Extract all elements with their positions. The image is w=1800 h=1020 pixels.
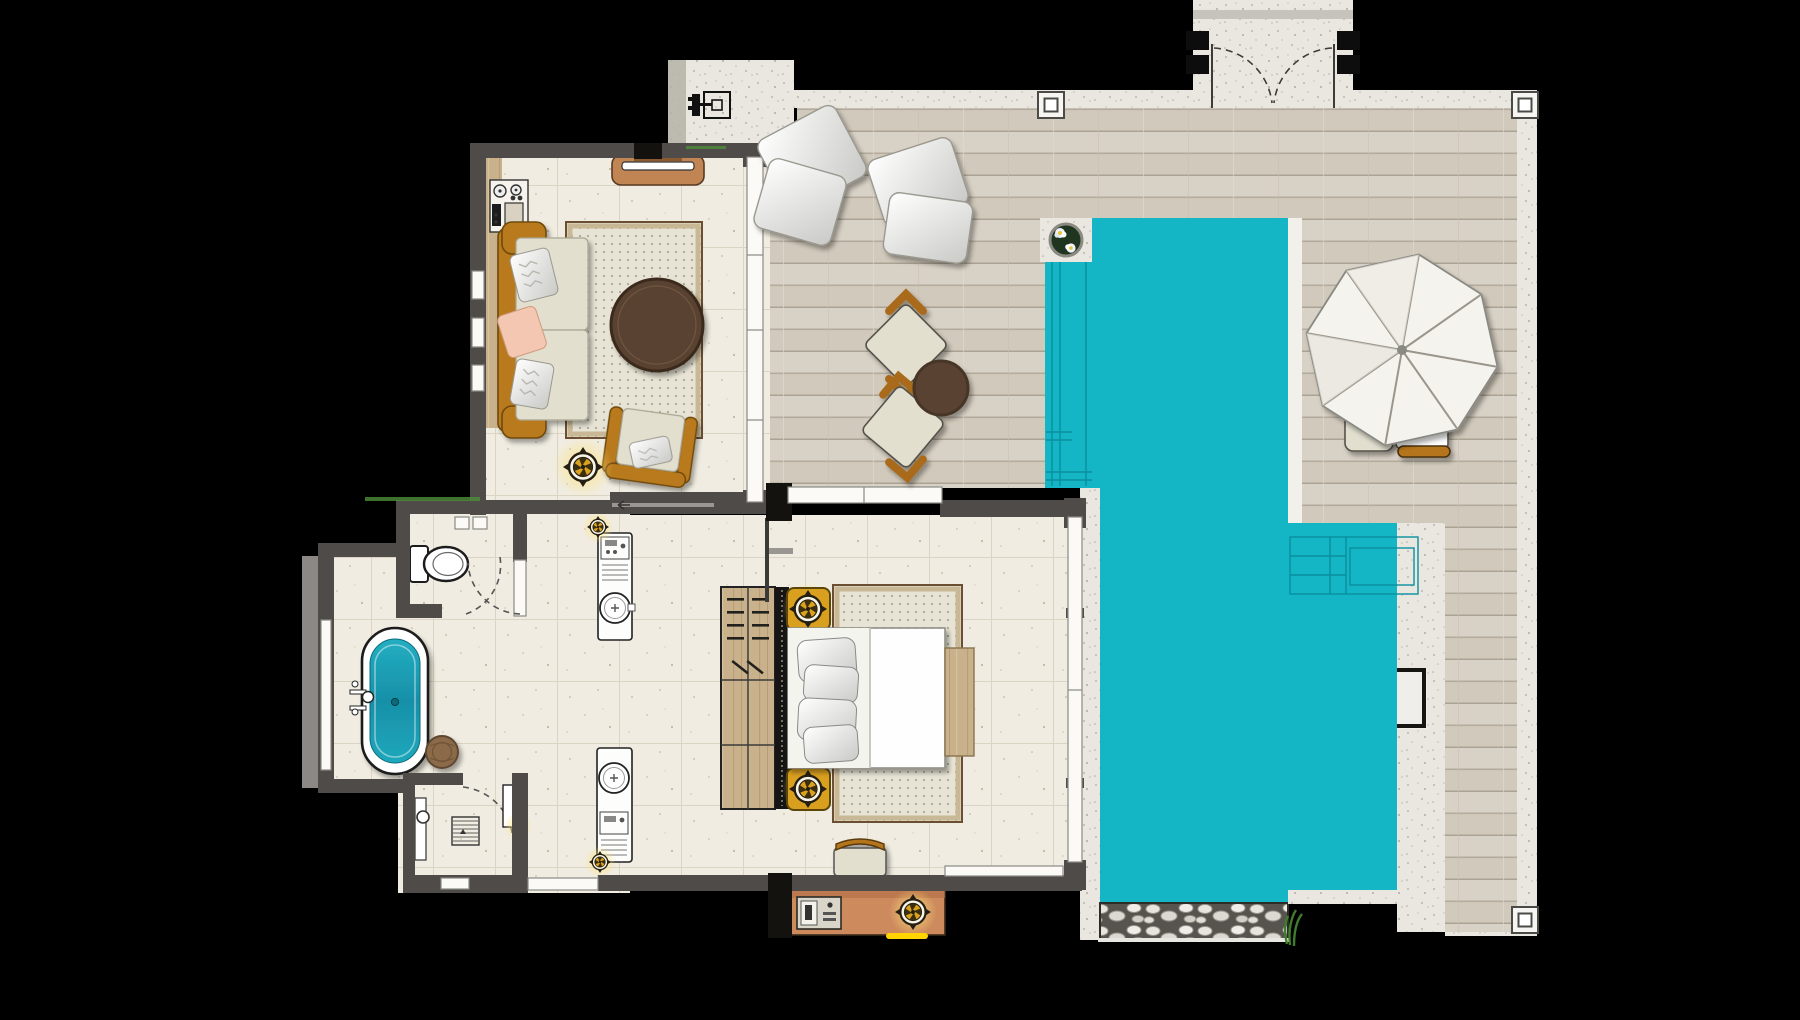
window (472, 365, 484, 391)
shower-control-icon (417, 811, 429, 823)
light-strip (886, 933, 928, 939)
window (321, 620, 331, 770)
deck-side-table (914, 361, 968, 415)
shower-bench (415, 798, 426, 860)
bedroom-bottom-glass-door (945, 866, 1063, 876)
bed-side-platform (945, 648, 974, 756)
vanity-top (598, 533, 635, 640)
vanity-bottom (597, 748, 632, 862)
threshold (528, 878, 598, 890)
wall-cap (455, 517, 469, 529)
toilet (410, 546, 468, 582)
media-console (787, 888, 945, 939)
sofa (496, 222, 588, 438)
outer-wall-ledge (302, 556, 318, 788)
coffee-table (611, 279, 703, 371)
bedroom-top-glass-door (788, 487, 942, 503)
entry-gate-path (1186, 0, 1360, 108)
floor-plan-canvas (0, 0, 1800, 1020)
tv-console (612, 155, 704, 185)
bed-pillows (797, 637, 860, 764)
wardrobe-hangers (721, 587, 775, 809)
tv-icon (622, 162, 694, 170)
deck-edge-top (793, 90, 1537, 108)
window (472, 318, 484, 347)
deck-planks-right-lower (1445, 523, 1517, 932)
double-bed (788, 628, 945, 768)
pool-corner-planter (1040, 218, 1092, 262)
wall-cap (473, 517, 487, 529)
corner-pillar (1512, 92, 1538, 118)
pool-coping-upper-right (1288, 218, 1302, 523)
corridor-door-leaf (514, 560, 526, 616)
window (441, 878, 469, 889)
corner-pillar (1512, 907, 1538, 933)
phone-equipment-icon (797, 897, 841, 929)
bed-bench (834, 839, 886, 876)
pool-ladder-notch (1397, 668, 1427, 729)
armchair (601, 406, 698, 489)
window (472, 271, 484, 299)
wood-stool (426, 736, 458, 768)
corner-pillar (1038, 92, 1064, 118)
deck-edge-right (1517, 90, 1537, 936)
